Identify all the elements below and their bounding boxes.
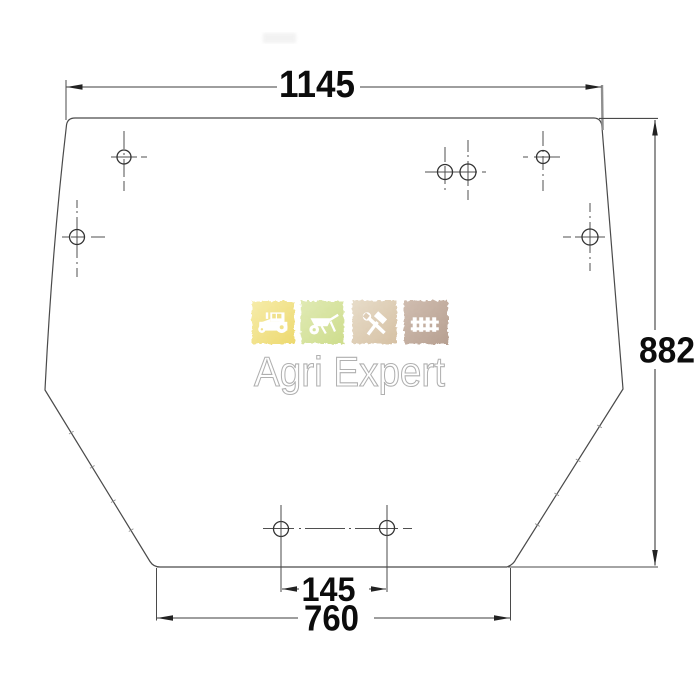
svg-text:760: 760 (304, 598, 359, 639)
svg-text:Agri Expert: Agri Expert (254, 348, 445, 395)
svg-text:882: 882 (639, 330, 695, 371)
svg-text:1145: 1145 (279, 64, 355, 106)
